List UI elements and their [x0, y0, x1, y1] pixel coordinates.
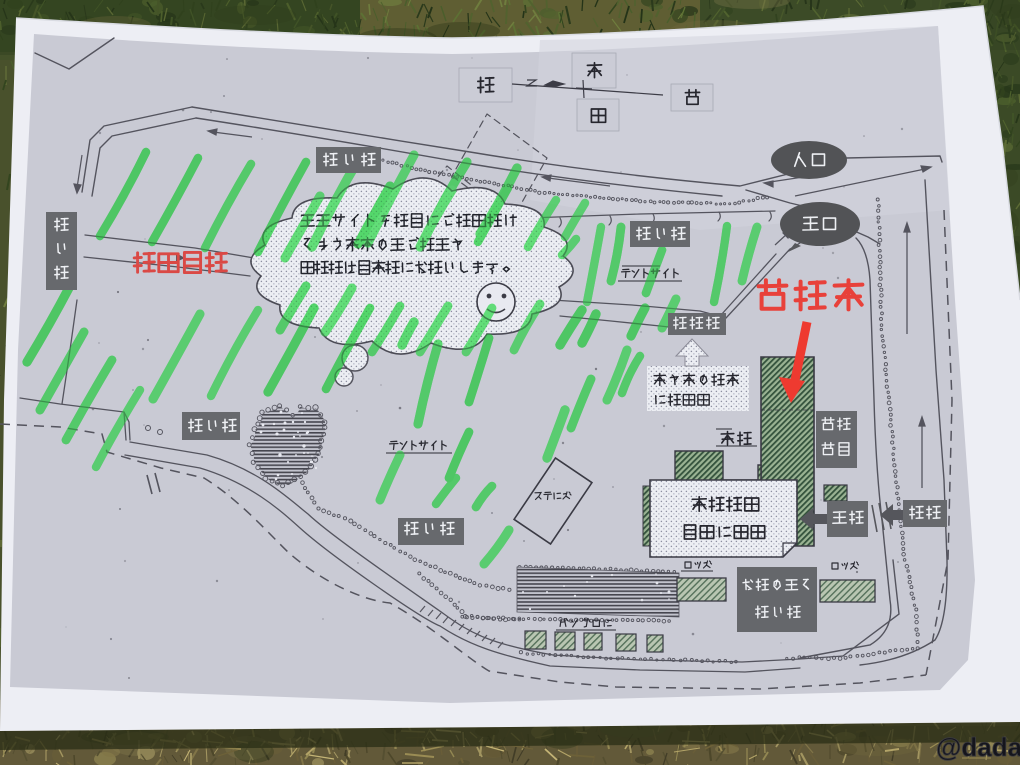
svg-text:@dada: @dada — [936, 732, 1020, 762]
